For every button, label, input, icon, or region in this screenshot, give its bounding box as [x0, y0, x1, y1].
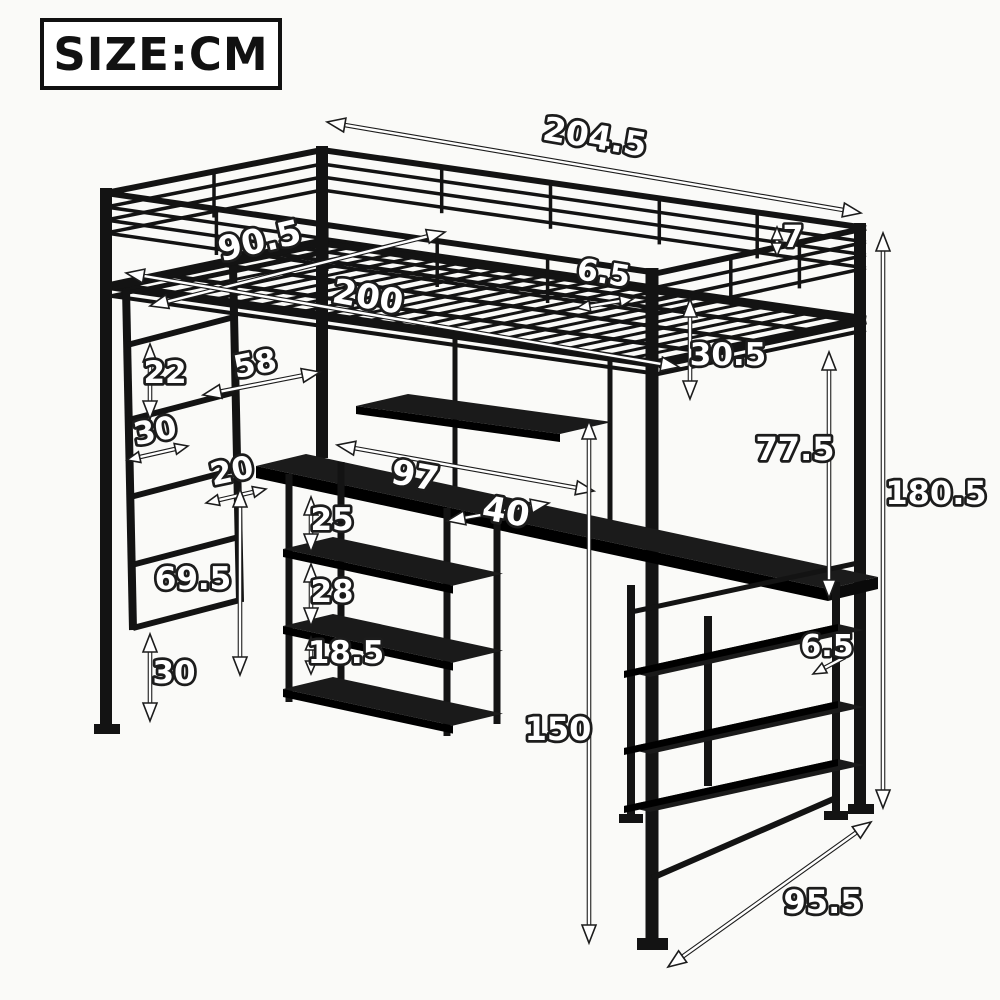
size-unit-label: SIZE:CM	[53, 28, 268, 81]
foot-pad	[94, 724, 120, 734]
dim-overall-depth: 95.5	[784, 883, 863, 921]
dim-ladder-ground-clearance: 30	[152, 655, 195, 691]
dim-overall-height: 180.5	[885, 474, 986, 512]
foot-pad	[619, 814, 643, 823]
foot-pad	[848, 804, 874, 814]
diagram: 204.5 90.5 200 6.5 7 30.5 58 22 30 20 97…	[0, 0, 1000, 1000]
dim-shelf-board-gap: 6.5	[800, 629, 853, 664]
dim-guardrail-bar-gap: 7	[783, 220, 804, 255]
dim-shelf-gap-middle: 28	[310, 574, 353, 610]
dim-desk-length: 97	[388, 452, 442, 500]
foot-pad	[637, 938, 668, 950]
dim-guardrail-height: 30.5	[690, 337, 767, 373]
loft-bed-dimension-diagram: 204.5 90.5 200 6.5 7 30.5 58 22 30 20 97…	[0, 0, 1000, 1000]
dim-shelf-gap-lower: 18.5	[308, 635, 385, 671]
dim-ladder-rung-spacing: 22	[143, 355, 186, 391]
dim-shelf-gap-upper: 25	[310, 502, 353, 538]
foot-pad	[824, 811, 848, 820]
size-unit-box: SIZE:CM	[42, 20, 280, 88]
dim-under-bed-height: 150	[525, 710, 592, 748]
dim-ladder-bottom-height: 69.5	[155, 561, 232, 597]
dim-desk-to-bed-clearance: 77.5	[756, 430, 835, 468]
dim-desk-depth: 40	[479, 488, 533, 536]
